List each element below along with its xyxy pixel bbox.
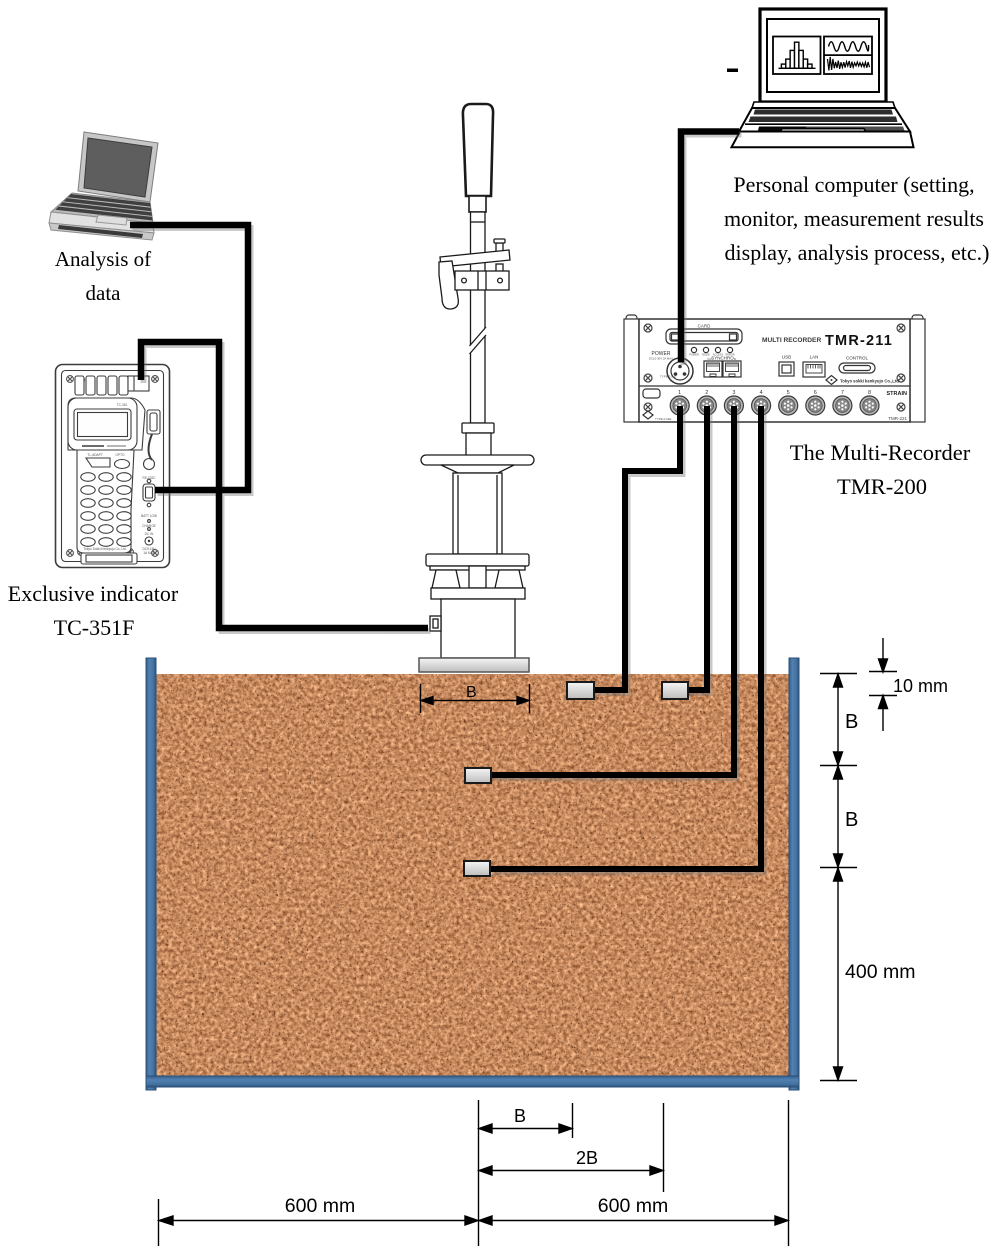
svg-text:400 mm: 400 mm	[845, 961, 915, 983]
svg-text:B: B	[845, 809, 858, 831]
svg-text:TL-ADAPT: TL-ADAPT	[87, 453, 102, 457]
svg-text:TC-351: TC-351	[117, 403, 128, 407]
svg-text:Exclusive indicator: Exclusive indicator	[8, 581, 179, 606]
svg-text:Personal computer (setting,: Personal computer (setting,	[733, 172, 974, 197]
svg-text:TYPE 0.5kE: TYPE 0.5kE	[655, 417, 671, 421]
svg-text:SYNCHRO: SYNCHRO	[711, 356, 734, 361]
svg-text:OUT: OUT	[707, 357, 713, 361]
svg-text:LAN: LAN	[810, 355, 819, 360]
svg-text:MULTI RECORDER: MULTI RECORDER	[762, 337, 821, 344]
svg-text:5: 5	[787, 390, 790, 396]
svg-text:8: 8	[868, 390, 871, 396]
svg-text:4: 4	[760, 390, 763, 396]
svg-text:POWER: POWER	[689, 353, 699, 356]
svg-text:USB: USB	[782, 355, 791, 360]
svg-text:1A MAX: 1A MAX	[143, 551, 155, 555]
svg-text:OPTO: OPTO	[116, 453, 125, 457]
svg-text:TMR-200: TMR-200	[837, 474, 927, 499]
svg-text:2B: 2B	[576, 1148, 598, 1168]
svg-text:TYPE 0.5kE: TYPE 0.5kE	[660, 375, 676, 379]
svg-text:MODE: MODE	[702, 353, 710, 356]
svg-text:6: 6	[814, 390, 817, 396]
svg-text:TMR-221: TMR-221	[888, 416, 907, 421]
svg-text:The Multi-Recorder: The Multi-Recorder	[790, 440, 971, 465]
svg-text:DC IN: DC IN	[145, 532, 154, 536]
svg-text:600 mm: 600 mm	[285, 1195, 355, 1217]
svg-text:TMR-211: TMR-211	[825, 333, 893, 349]
svg-text:7: 7	[841, 390, 844, 396]
svg-text:3: 3	[732, 390, 735, 396]
svg-text:CONTROL: CONTROL	[846, 356, 868, 361]
svg-text:STRAIN: STRAIN	[887, 391, 908, 397]
svg-text:B: B	[466, 684, 477, 701]
svg-text:CARD: CARD	[698, 324, 712, 329]
svg-text:DC10-30V 2A MAX: DC10-30V 2A MAX	[649, 357, 673, 361]
svg-text:B: B	[514, 1106, 526, 1126]
svg-text:monitor, measurement results: monitor, measurement results	[724, 206, 984, 231]
svg-text:Tokyo sokki kenkyujo Co.,Ltd: Tokyo sokki kenkyujo Co.,Ltd	[840, 379, 899, 384]
svg-text:10 mm: 10 mm	[893, 676, 948, 696]
svg-text:RS-232C: RS-232C	[142, 476, 156, 480]
svg-text:TC-351F: TC-351F	[54, 615, 135, 640]
svg-text:Tokyo Sokki Kenkyujo Co.,Ltd.: Tokyo Sokki Kenkyujo Co.,Ltd.	[83, 547, 126, 551]
svg-text:IN: IN	[734, 357, 737, 361]
svg-text:Analysis of: Analysis of	[55, 247, 151, 271]
svg-text:data: data	[86, 281, 122, 305]
svg-text:B: B	[845, 711, 858, 733]
svg-text:display, analysis process, etc: display, analysis process, etc.)	[725, 240, 990, 265]
svg-text:CHARGE: CHARGE	[142, 524, 156, 528]
svg-text:2: 2	[705, 390, 708, 396]
svg-text:600 mm: 600 mm	[598, 1195, 668, 1217]
svg-text:1: 1	[678, 390, 681, 396]
svg-text:BATT LOW: BATT LOW	[141, 514, 157, 518]
